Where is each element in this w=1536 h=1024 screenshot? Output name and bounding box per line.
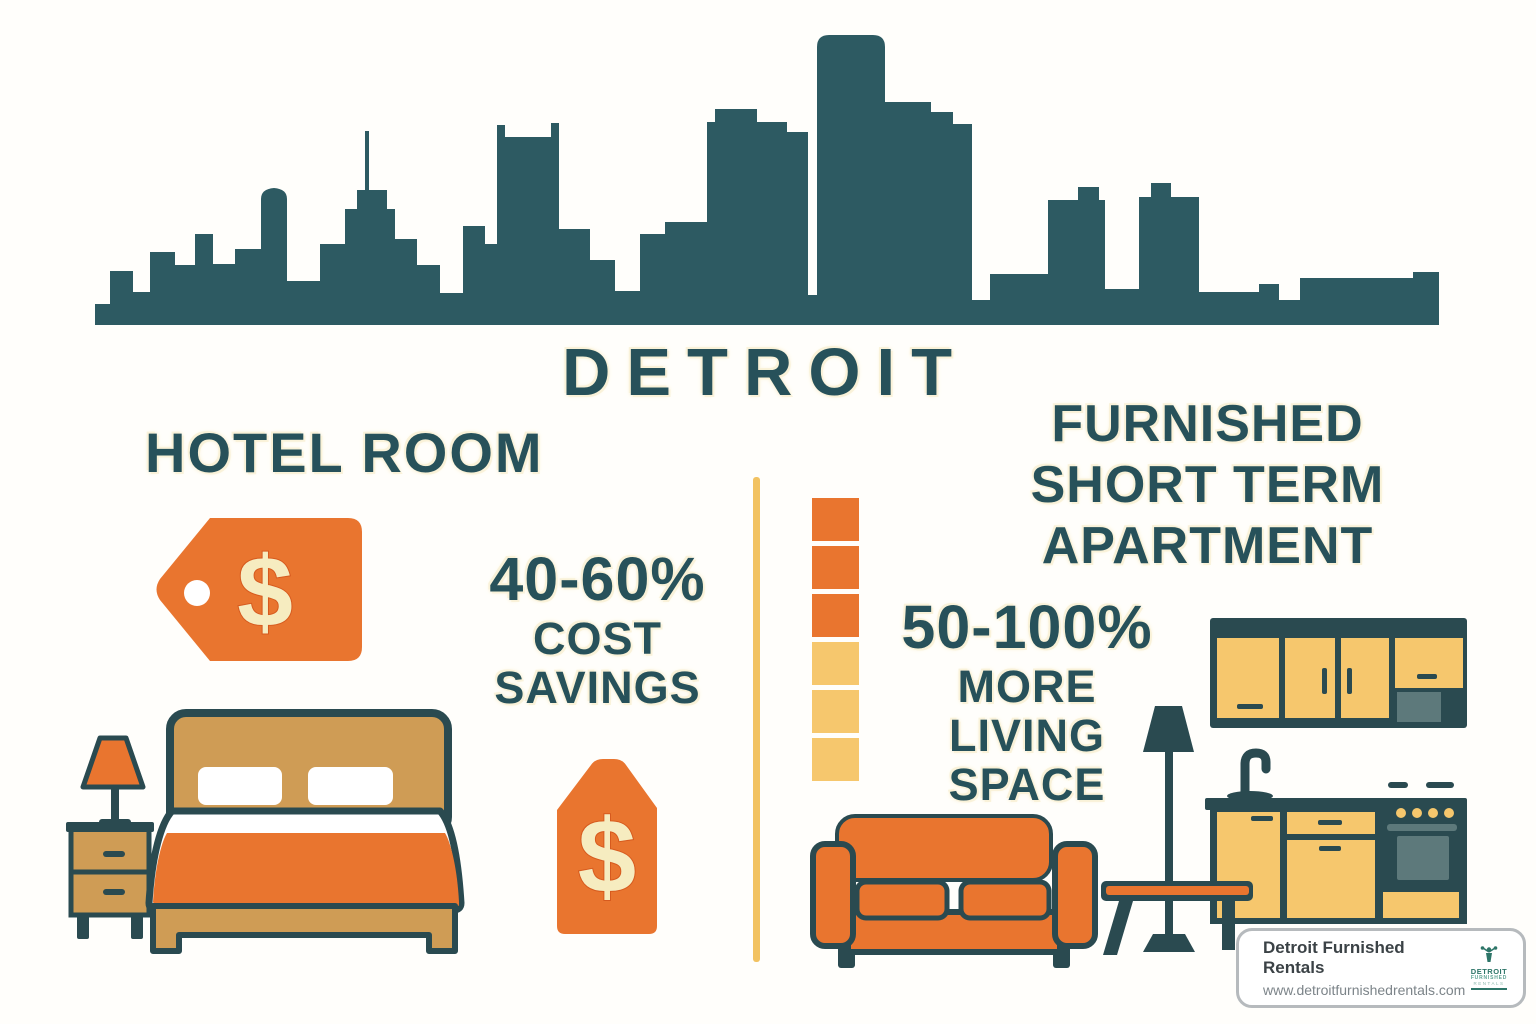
space-block-yellow [812,690,859,733]
cost-savings-label1: COST [450,614,745,663]
skyline-silhouette [95,35,1439,325]
space-block-orange [812,498,859,541]
sofa-icon [808,806,1100,976]
brand-website-link[interactable]: www.detroitfurnishedrentals.com [1263,982,1465,998]
detroit-skyline-graphic [95,3,1440,325]
hotel-bed-icon [55,695,475,995]
cost-savings-stat: 40-60% COST SAVINGS [450,544,745,712]
dollar-sign: $ [237,536,293,648]
apartment-heading: FURNISHED SHORT TERM APARTMENT [1015,394,1400,577]
section-divider [753,477,760,962]
bed-icon [149,713,461,951]
hotel-room-heading: HOTEL ROOM [145,420,555,485]
brand-card: Detroit Furnished Rentals www.detroitfur… [1236,928,1526,1008]
stove-burner [1388,782,1408,788]
space-block-orange [812,546,859,589]
space-block-yellow [812,738,859,781]
tag-hole [184,580,210,606]
infographic-canvas: DETROIT HOTEL ROOM FURNISHED SHORT TERM … [0,0,1536,1024]
apartment-heading-line2: SHORT TERM [1015,455,1400,516]
pillow [308,767,393,805]
table-lamp-icon [83,738,143,828]
logo-text-line3: RENTALS [1465,982,1513,987]
brand-card-texts: Detroit Furnished Rentals www.detroitfur… [1263,938,1465,998]
logo-tagline-bar [1471,988,1507,990]
price-tag-icon: $ [150,512,365,667]
bed-blanket [153,833,459,906]
stove-burner [1426,782,1454,788]
spirit-of-detroit-icon [1479,946,1499,964]
cost-savings-label2: SAVINGS [450,663,745,712]
floor-lamp-and-table-icon [1095,700,1260,975]
apartment-heading-line1: FURNISHED [1015,394,1400,455]
living-space-value: 50-100% [868,592,1186,662]
nightstand-icon [66,822,154,939]
price-tag2-icon: $ [546,752,668,940]
brand-logo: DETROIT FURNISHED RENTALS [1465,946,1513,991]
microwave-icon [1397,692,1441,722]
floor-lamp-icon [1143,706,1195,952]
dollar-sign: $ [578,798,636,915]
space-block-yellow [812,642,859,685]
cost-savings-value: 40-60% [450,544,745,614]
pillow [198,767,282,805]
brand-name: Detroit Furnished Rentals [1263,938,1465,978]
living-space-blocks [812,498,859,786]
apartment-heading-line3: APARTMENT [1015,516,1400,577]
space-block-orange [812,594,859,637]
